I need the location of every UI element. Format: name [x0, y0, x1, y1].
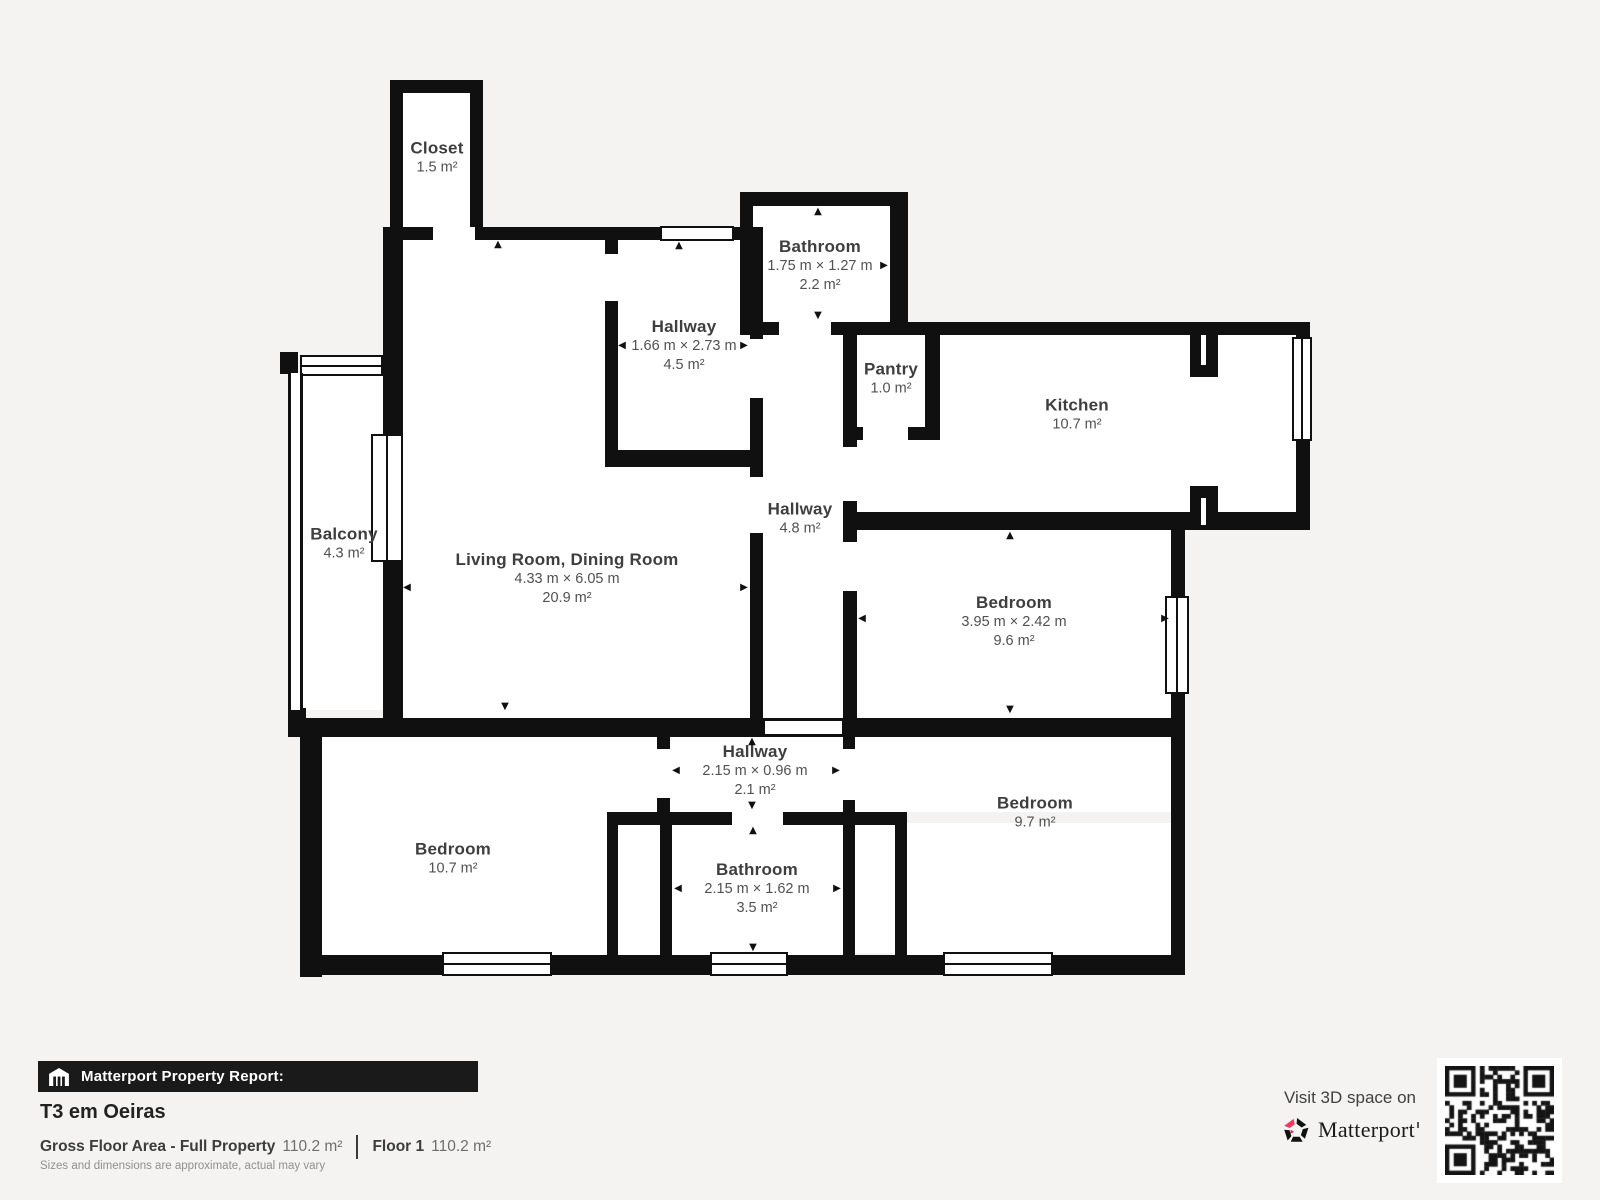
property-title: T3 em Oeiras [40, 1101, 166, 1124]
report-banner-label: Matterport Property Report: [81, 1068, 284, 1085]
disclaimer-text: Sizes and dimensions are approximate, ac… [40, 1160, 325, 1172]
window-bedroom-left [442, 952, 552, 976]
room-label-living-room: Living Room, Dining Room4.33 m × 6.05 m2… [456, 550, 679, 608]
measure-arrow-down-icon: ▼ [748, 801, 756, 811]
door-opening-kitchen [843, 445, 857, 503]
measure-arrow-down-icon: ▼ [814, 311, 822, 321]
measure-arrow-right-icon: ▶ [1161, 614, 1169, 624]
room-label-bathroom-top: Bathroom1.75 m × 1.27 m2.2 m² [767, 237, 872, 295]
area-summary: Gross Floor Area - Full Property 110.2 m… [40, 1135, 491, 1159]
door-opening-bedroom-left [657, 747, 670, 800]
measure-arrow-right-icon: ▶ [833, 884, 841, 894]
measure-arrow-right-icon: ▶ [880, 261, 888, 271]
room-fill-shower-nook-left [618, 825, 660, 955]
room-fill-bedroom-bottom-right-b [907, 823, 1171, 955]
floor-label: Floor 1 [372, 1138, 424, 1156]
room-label-kitchen: Kitchen10.7 m² [1045, 396, 1109, 435]
wall [390, 80, 403, 232]
measure-arrow-down-icon: ▼ [675, 451, 683, 461]
matterport-logo: Matterport [1240, 1116, 1460, 1144]
measure-arrow-left-icon: ◀ [753, 261, 761, 271]
wall [843, 512, 1310, 530]
window-bedroom-right [1165, 596, 1189, 694]
wall [300, 722, 322, 977]
measure-arrow-down-icon: ▼ [749, 943, 757, 953]
room-label-bedroom-right: Bedroom3.95 m × 2.42 m9.6 m² [961, 593, 1066, 651]
visit-3d-text: Visit 3D space on [1240, 1088, 1460, 1108]
door-opening-bathroom-top [777, 322, 833, 335]
door-jamb-slit [1201, 335, 1206, 365]
qr-code-pattern [1445, 1066, 1554, 1175]
measure-arrow-right-icon: ▶ [740, 583, 748, 593]
room-label-bedroom-bottom-right: Bedroom9.7 m² [997, 794, 1073, 833]
gross-area-value: 110.2 m² [282, 1138, 342, 1156]
measure-arrow-left-icon: ◀ [674, 884, 682, 894]
measure-arrow-left-icon: ◀ [403, 583, 411, 593]
measure-arrow-left-icon: ◀ [672, 766, 680, 776]
door-opening-pantry [861, 427, 910, 440]
wall [895, 823, 907, 967]
room-label-bathroom-bottom: Bathroom2.15 m × 1.62 m3.5 m² [704, 860, 809, 918]
window-bedroom-bottom-right [943, 952, 1053, 976]
wall [300, 718, 1185, 737]
measure-arrow-up-icon: ▲ [748, 737, 756, 747]
measure-arrow-down-icon: ▼ [501, 702, 509, 712]
balcony-glass-wall [288, 373, 303, 710]
wall [605, 450, 763, 467]
measure-arrow-down-icon: ▼ [1006, 705, 1014, 715]
room-label-pantry: Pantry1.0 m² [864, 360, 918, 399]
door-opening-hallway-living [605, 252, 618, 303]
window-kitchen [1292, 337, 1312, 441]
wall [740, 192, 908, 206]
window-balcony-top [300, 355, 383, 376]
wall [607, 812, 618, 955]
report-banner: Matterport Property Report: [38, 1061, 478, 1092]
room-label-balcony: Balcony4.3 m² [310, 525, 378, 564]
wall [890, 192, 908, 335]
wall [470, 80, 483, 232]
door-opening-bedroom-bottom-right [843, 747, 855, 802]
window-bathroom-bottom [710, 952, 788, 976]
wall [1171, 525, 1185, 968]
measure-arrow-right-icon: ▶ [832, 766, 840, 776]
matterport-mark-icon [1281, 1116, 1311, 1144]
floorplan-report-page: Closet1.5 m² Hallway1.66 m × 2.73 m4.5 m… [0, 0, 1600, 1200]
door-opening-hallway-top [750, 337, 763, 400]
measure-arrow-up-icon: ▲ [494, 240, 502, 250]
matterport-wordmark: Matterport [1318, 1117, 1415, 1143]
floor-value: 110.2 m² [431, 1138, 491, 1156]
measure-arrow-right-icon: ▶ [740, 341, 748, 351]
measure-arrow-up-icon: ▲ [814, 207, 822, 217]
divider [356, 1135, 358, 1159]
room-label-hallway-center: Hallway4.8 m² [768, 500, 833, 539]
measure-arrow-up-icon: ▲ [675, 241, 683, 251]
house-icon [49, 1068, 69, 1086]
wall [660, 812, 672, 955]
window-hallway-top [660, 226, 734, 241]
measure-arrow-up-icon: ▲ [1006, 531, 1014, 541]
door-jamb-slit [1201, 498, 1206, 525]
room-label-closet: Closet1.5 m² [410, 139, 463, 178]
gross-area-label: Gross Floor Area - Full Property [40, 1138, 275, 1156]
measure-arrow-up-icon: ▲ [749, 826, 757, 836]
door-opening-closet [431, 227, 477, 240]
wall [280, 352, 298, 374]
room-label-hallway-bottom: Hallway2.15 m × 0.96 m2.1 m² [702, 742, 807, 800]
door-opening-living-hallway [750, 475, 763, 535]
door-opening-hallways [765, 718, 842, 737]
door-opening-bathroom-bottom [730, 812, 785, 825]
room-label-bedroom-left: Bedroom10.7 m² [415, 840, 491, 879]
door-opening-bedroom-right [843, 540, 857, 593]
room-fill-shower-nook-right [855, 823, 895, 953]
visit-3d-block: Visit 3D space on Matterport [1240, 1088, 1460, 1144]
measure-arrow-left-icon: ◀ [618, 341, 626, 351]
qr-code [1437, 1058, 1562, 1183]
measure-arrow-left-icon: ◀ [858, 614, 866, 624]
trademark-tick [1417, 1122, 1419, 1128]
room-label-hallway-top: Hallway1.66 m × 2.73 m4.5 m² [631, 317, 736, 375]
wall [925, 335, 940, 435]
